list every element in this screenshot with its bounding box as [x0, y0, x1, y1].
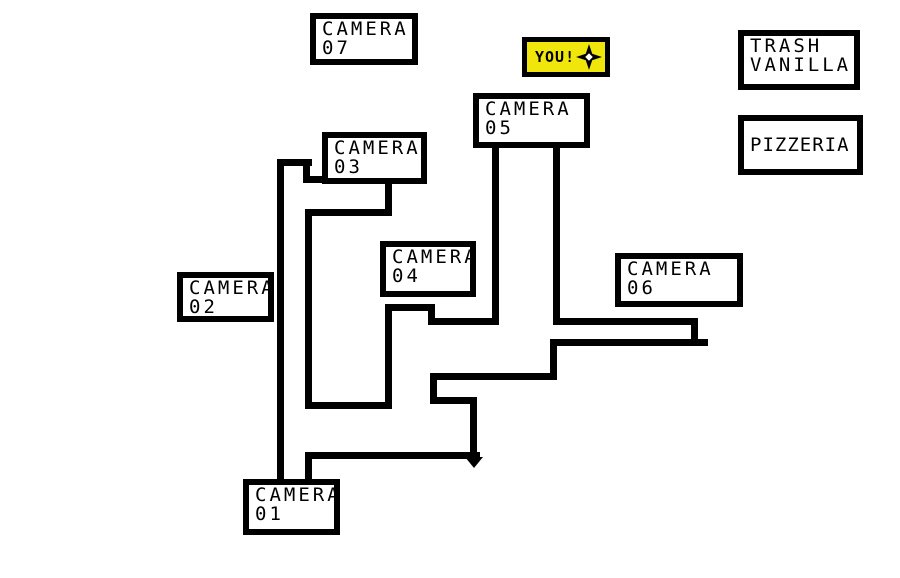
camera-03-line2: 03	[334, 158, 421, 177]
pizzeria-line1: PIZZERIA	[750, 136, 850, 155]
you-label: YOU!	[535, 50, 575, 65]
corridor-wall	[385, 304, 392, 409]
you-marker: YOU!	[522, 37, 610, 77]
camera-06-line2: 06	[627, 279, 737, 298]
camera-06-label: CAMERA 06	[615, 253, 743, 307]
camera-02-label: CAMERA 02	[177, 272, 274, 322]
corridor-wall	[305, 452, 480, 459]
corridor-wall	[305, 452, 312, 479]
camera-05-line2: 05	[485, 119, 584, 138]
camera-07-label: CAMERA 07	[310, 13, 418, 65]
corridor-arrow-tip-icon	[465, 457, 483, 468]
camera-03-label: CAMERA 03	[322, 132, 427, 184]
camera-02-line2: 02	[189, 298, 268, 317]
corridor-wall	[305, 209, 392, 216]
pizzeria-label: PIZZERIA	[738, 115, 863, 175]
corridor-wall	[277, 159, 284, 479]
corridor-wall	[553, 318, 698, 325]
corridor-wall	[470, 397, 477, 454]
corridor-wall	[550, 339, 708, 346]
corridor-wall	[430, 373, 557, 380]
trash-vanilla-line2: VANILLA	[750, 56, 854, 75]
corridor-wall	[305, 209, 312, 409]
camera-01-line2: 01	[255, 505, 334, 524]
corridor-wall	[305, 402, 391, 409]
camera-07-line2: 07	[322, 39, 412, 58]
four-pointed-star-icon	[575, 43, 603, 71]
camera-01-label: CAMERA 01	[243, 479, 340, 535]
trash-vanilla-label: TRASH VANILLA	[738, 30, 860, 90]
camera-05-label: CAMERA 05	[473, 93, 590, 148]
corridor-wall	[492, 146, 499, 325]
camera-04-label: CAMERA 04	[380, 241, 476, 297]
corridor-wall	[428, 318, 499, 325]
pizzeria-camera-map: CAMERA 07 YOU! TRASH VANILLA PIZZERIA CA…	[0, 0, 900, 578]
camera-04-line2: 04	[392, 267, 470, 286]
corridor-wall	[553, 146, 560, 325]
